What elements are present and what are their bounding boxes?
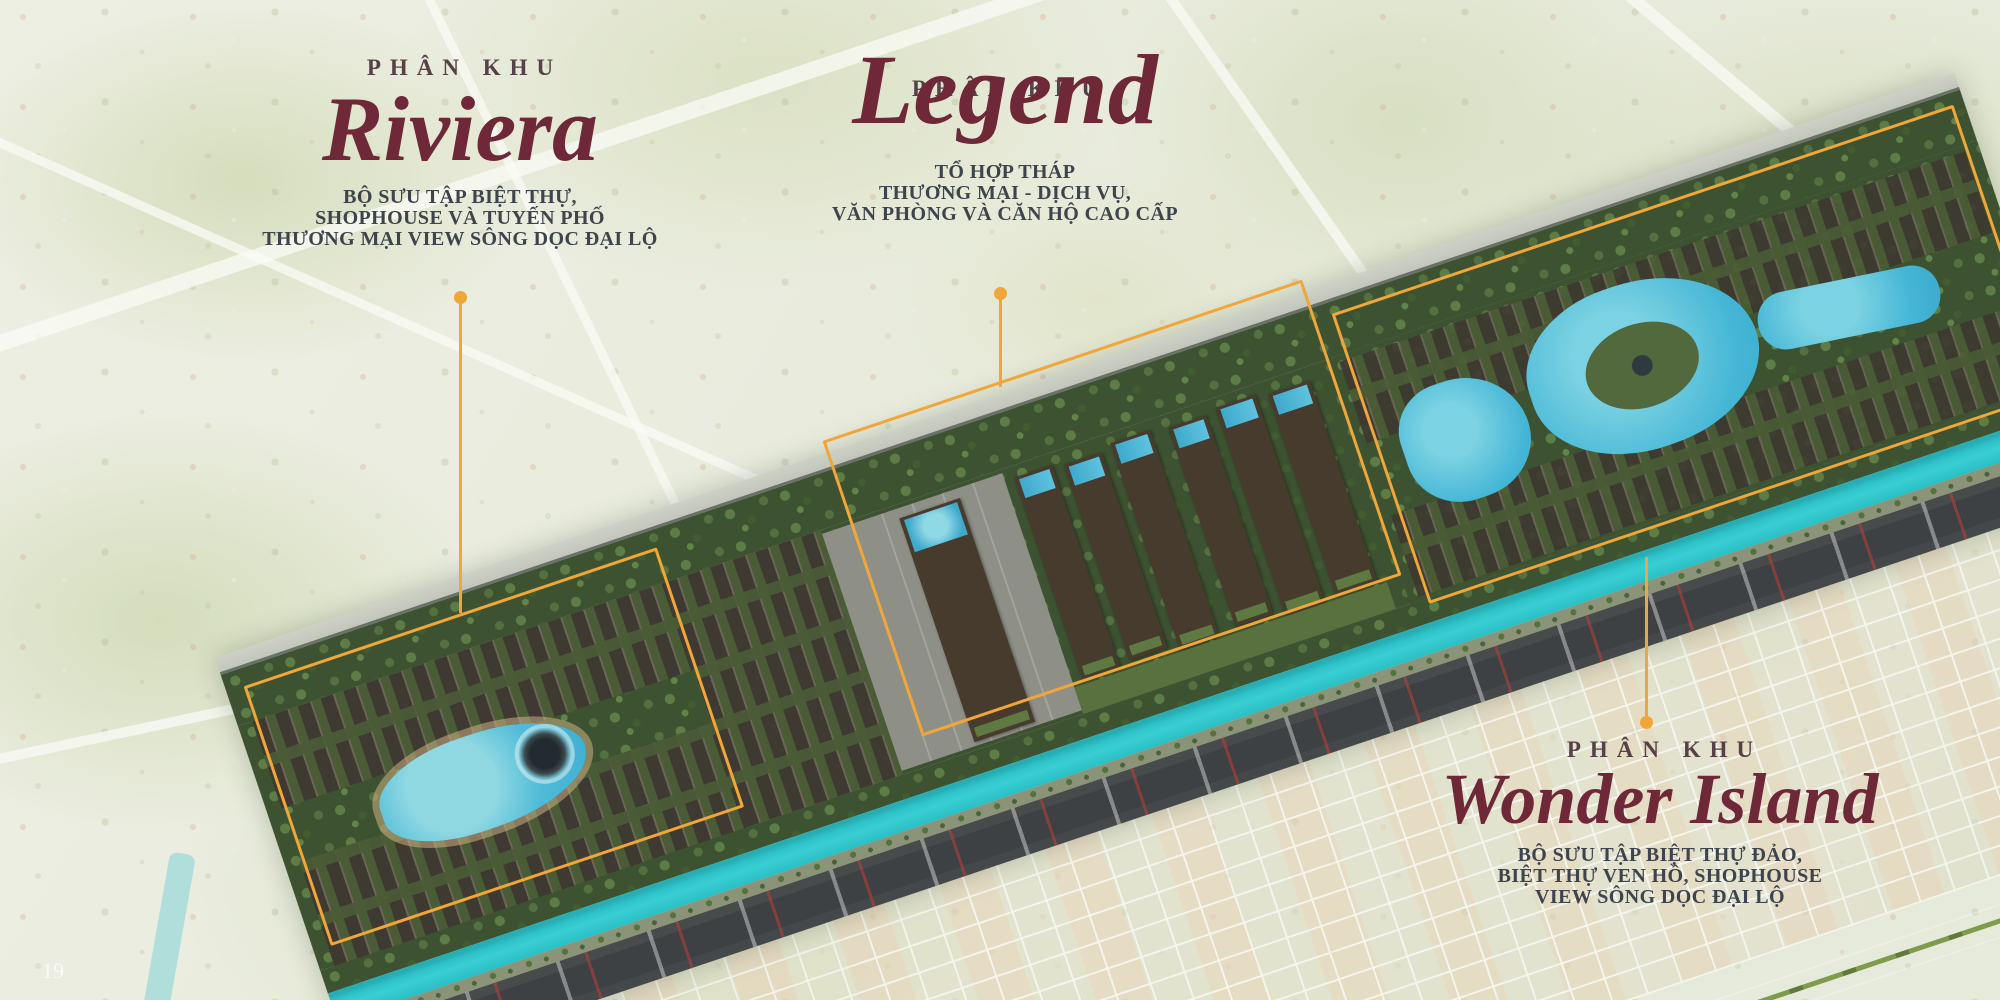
legend-zone-name: Legend <box>770 40 1240 154</box>
legend-description-line: VĂN PHÒNG VÀ CĂN HỘ CAO CẤP <box>770 204 1240 225</box>
riviera-description-line: THƯƠNG MẠI VIEW SÔNG DỌC ĐẠI LỘ <box>230 229 690 250</box>
riviera-title-block: PHÂN KHU Riviera BỘ SƯU TẬP BIỆT THỰ, SH… <box>230 55 690 250</box>
wonder-island-description-line: BIỆT THỰ VEN HỒ, SHOPHOUSE <box>1370 866 1950 887</box>
legend-callout-line <box>999 293 1002 387</box>
page-number: 19 <box>42 958 64 984</box>
callout-dot <box>454 291 467 304</box>
riviera-description-line: BỘ SƯU TẬP BIỆT THỰ, <box>230 187 690 208</box>
riviera-description-line: SHOPHOUSE VÀ TUYẾN PHỐ <box>230 208 690 229</box>
wonder-island-title-block: PHÂN KHU Wonder Island BỘ SƯU TẬP BIỆT T… <box>1370 737 1950 908</box>
wonder-island-callout-line <box>1645 557 1648 723</box>
legend-description-line: THƯƠNG MẠI - DỊCH VỤ, <box>770 183 1240 204</box>
legend-title-block: PHÂN KHU Legend TỔ HỢP THÁP THƯƠNG MẠI -… <box>770 48 1240 225</box>
riviera-zone-name: Riviera <box>230 83 690 175</box>
legend-description-line: TỔ HỢP THÁP <box>770 162 1240 183</box>
wonder-island-description-line: VIEW SÔNG DỌC ĐẠI LỘ <box>1370 887 1950 908</box>
callout-dot <box>994 287 1007 300</box>
wonder-island-description-line: BỘ SƯU TẬP BIỆT THỰ ĐẢO, <box>1370 845 1950 866</box>
legend-description: TỔ HỢP THÁP THƯƠNG MẠI - DỊCH VỤ, VĂN PH… <box>770 162 1240 225</box>
riviera-callout-line <box>459 297 462 613</box>
callout-dot <box>1640 716 1653 729</box>
masterplan-page: PHÂN KHU Riviera BỘ SƯU TẬP BIỆT THỰ, SH… <box>0 0 2000 1000</box>
wonder-island-zone-name: Wonder Island <box>1370 763 1950 835</box>
